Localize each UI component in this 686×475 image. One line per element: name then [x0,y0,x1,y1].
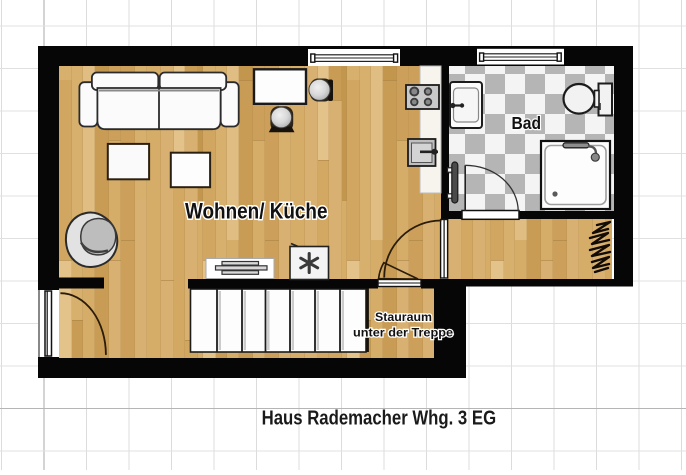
svg-text:Wohnen/ Küche: Wohnen/ Küche [185,199,328,224]
svg-text:unter der Treppe: unter der Treppe [353,326,453,340]
svg-text:Bad: Bad [512,113,542,133]
svg-text:Stauraum: Stauraum [375,310,432,324]
svg-text:Haus Rademacher Whg. 3 EG: Haus Rademacher Whg. 3 EG [262,407,497,429]
